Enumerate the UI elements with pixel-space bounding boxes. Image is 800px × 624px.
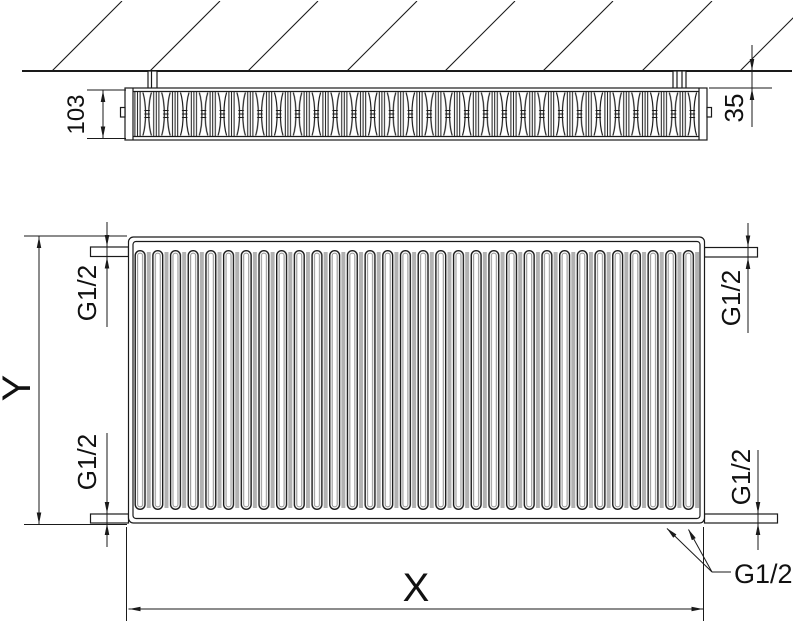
connection-stub-bottom-left [91,514,129,523]
conn-top-right-label: G1/2 [716,270,746,326]
connection-stub-top-left [91,247,129,257]
radiator-top-view-body [121,88,712,140]
drawing-svg: 103 35 Y [0,0,800,624]
dim-width-label: X [403,566,430,610]
dim-height-label: Y [0,375,39,402]
conn-callout-label: G1/2 [734,559,793,589]
dim-depth: 103 [63,90,126,139]
front-view: Y X G1/2 G1/2 [0,222,793,621]
callout-bottom-connections: G1/2 [667,529,793,590]
top-view: 103 35 [22,1,800,140]
dim-conn-bottom-left: G1/2 [72,433,107,547]
wall-hatch [52,1,800,71]
connection-stub-top-right [705,248,758,258]
mounting-bracket-right [673,71,686,89]
conn-bottom-left-label: G1/2 [72,434,102,490]
radiator-technical-drawing: 103 35 Y [0,0,800,624]
dim-height: Y [0,236,127,525]
dim-wall-gap-label: 35 [719,94,749,123]
front-fin-field [135,250,701,510]
connection-stub-bottom-right [705,514,778,523]
dim-conn-top-right: G1/2 [716,223,748,333]
dim-width: X [127,527,704,621]
conn-top-left-label: G1/2 [72,265,102,321]
dim-conn-top-left: G1/2 [72,222,107,327]
dim-conn-bottom-right: G1/2 [726,449,758,550]
mounting-bracket-left [148,71,157,89]
end-plug-left [121,108,126,118]
dim-wall-gap: 35 [709,45,772,127]
conn-bottom-right-label: G1/2 [726,449,756,505]
convector-fin-section [134,92,699,136]
dim-depth-label: 103 [63,94,90,134]
end-plug-right [707,108,712,118]
radiator-front-view-body [129,237,705,523]
